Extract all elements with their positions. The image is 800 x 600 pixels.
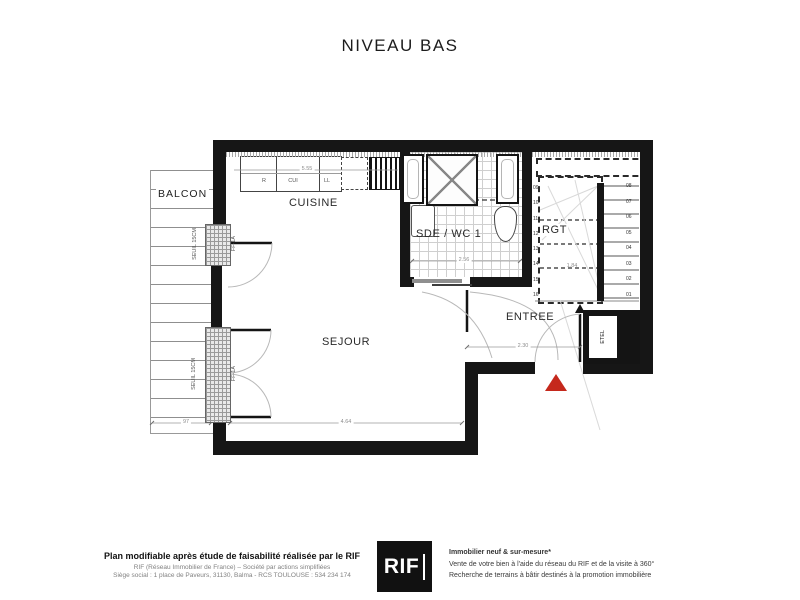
footer-address: Siège social : 1 place de Paveurs, 31130… (88, 572, 376, 579)
stair-step-number: 09 (533, 186, 545, 191)
page-title: NIVEAU BAS (0, 36, 800, 56)
footer-service-3: Recherche de terrains à bâtir destinés à… (449, 572, 744, 579)
stair-step-number: 05 (626, 231, 638, 236)
window-sill-label-lower: SEUIL 15CM (192, 342, 198, 406)
appliance-dashed-outline (341, 157, 368, 190)
etel-label: ETEL (600, 330, 606, 344)
wall-sejour-right (465, 368, 478, 455)
wall-left-middle (211, 262, 222, 328)
window-tag-upper: FF-1A (232, 226, 238, 262)
stair-step-numbers-lower: 0102030405060708 (626, 184, 638, 298)
stairs-upper-flight-outline (536, 158, 648, 177)
stair-step-number: 02 (626, 277, 638, 282)
floor-plan-page: NIVEAU BAS (0, 0, 800, 600)
wall-sde-right (522, 152, 532, 287)
window-niche-right (496, 154, 519, 204)
counter-divider (276, 157, 277, 191)
rif-logo-text: RIF (384, 555, 419, 579)
entry-direction-arrow-icon (575, 304, 585, 313)
stair-step-numbers-upper: 0910111213141516 (533, 186, 545, 298)
room-label-rgt: RGT (541, 224, 568, 236)
dim-sde: 2.56 (457, 257, 472, 263)
shower-tray (426, 154, 478, 206)
sliding-door-leaf (412, 279, 462, 283)
wall-entree-bottom (465, 362, 535, 374)
room-label-entree: ENTREE (506, 311, 554, 323)
room-label-balcon: BALCON (156, 188, 209, 200)
stair-step-number: 15 (533, 278, 545, 283)
window-balcony-lower (205, 327, 231, 423)
kitchen-counter (240, 156, 342, 192)
stair-spine-wall (597, 183, 604, 301)
dim-stairs: 1.84 (565, 263, 580, 269)
footer-company: RIF (Réseau Immobilier de France) – Soci… (88, 564, 376, 571)
rif-logo-bar (423, 554, 425, 580)
stair-step-number: 13 (533, 247, 545, 252)
window-niche-left (402, 154, 424, 204)
stair-step-number: 14 (533, 262, 545, 267)
room-label-cuisine: CUISINE (289, 197, 338, 209)
appliance-label-cooker: CUI (288, 179, 297, 185)
window-balcony-upper (205, 224, 231, 266)
window-tag-lower: FF-1A (232, 348, 238, 400)
stair-step-number: 04 (626, 246, 638, 251)
rif-logo: RIF (377, 541, 432, 592)
footer-service-2: Vente de votre bien à l'aide du réseau d… (449, 561, 744, 568)
dim-sejour: 4.64 (339, 419, 354, 425)
wall-right (640, 140, 653, 374)
window-sill-label-upper: SEUIL 15CM (193, 224, 199, 264)
wall-top (213, 140, 653, 152)
stair-step-number: 08 (626, 184, 638, 189)
stair-step-number: 06 (626, 215, 638, 220)
stair-step-number: 07 (626, 200, 638, 205)
room-label-sde: SDE / WC 1 (416, 228, 481, 240)
stair-step-number: 16 (533, 293, 545, 298)
appliance-label-washer: LL (324, 179, 330, 185)
stair-step-number: 12 (533, 232, 545, 237)
entry-marker-triangle-icon (545, 374, 567, 391)
footer-service-1: Immobilier neuf & sur-mesure* (449, 549, 744, 556)
stair-step-number: 03 (626, 262, 638, 267)
dim-kitchen: 5.55 (300, 166, 315, 172)
electrical-panel-niche: ETEL (589, 316, 617, 358)
footer-right-block: Immobilier neuf & sur-mesure* Vente de v… (449, 549, 744, 579)
stair-step-number: 10 (533, 201, 545, 206)
wall-left-upper (213, 140, 226, 226)
wall-bottom (213, 441, 478, 455)
room-label-sejour: SEJOUR (322, 336, 370, 348)
plan-linework (0, 0, 800, 600)
counter-edge-line (241, 173, 341, 174)
footer-left-block: Plan modifiable après étude de faisabili… (88, 551, 376, 579)
appliance-hob-hatched (369, 157, 400, 190)
footer-disclaimer: Plan modifiable après étude de faisabili… (88, 551, 376, 561)
rgt-closet-dashed-outline (538, 176, 603, 304)
stair-step-number: 11 (533, 217, 545, 222)
dim-balcony: 97 (181, 419, 191, 425)
appliance-label-fridge: R (262, 179, 266, 185)
dim-entree: 2.30 (516, 343, 531, 349)
sliding-door-track (432, 284, 472, 286)
stair-step-number: 01 (626, 293, 638, 298)
counter-divider (319, 157, 320, 191)
